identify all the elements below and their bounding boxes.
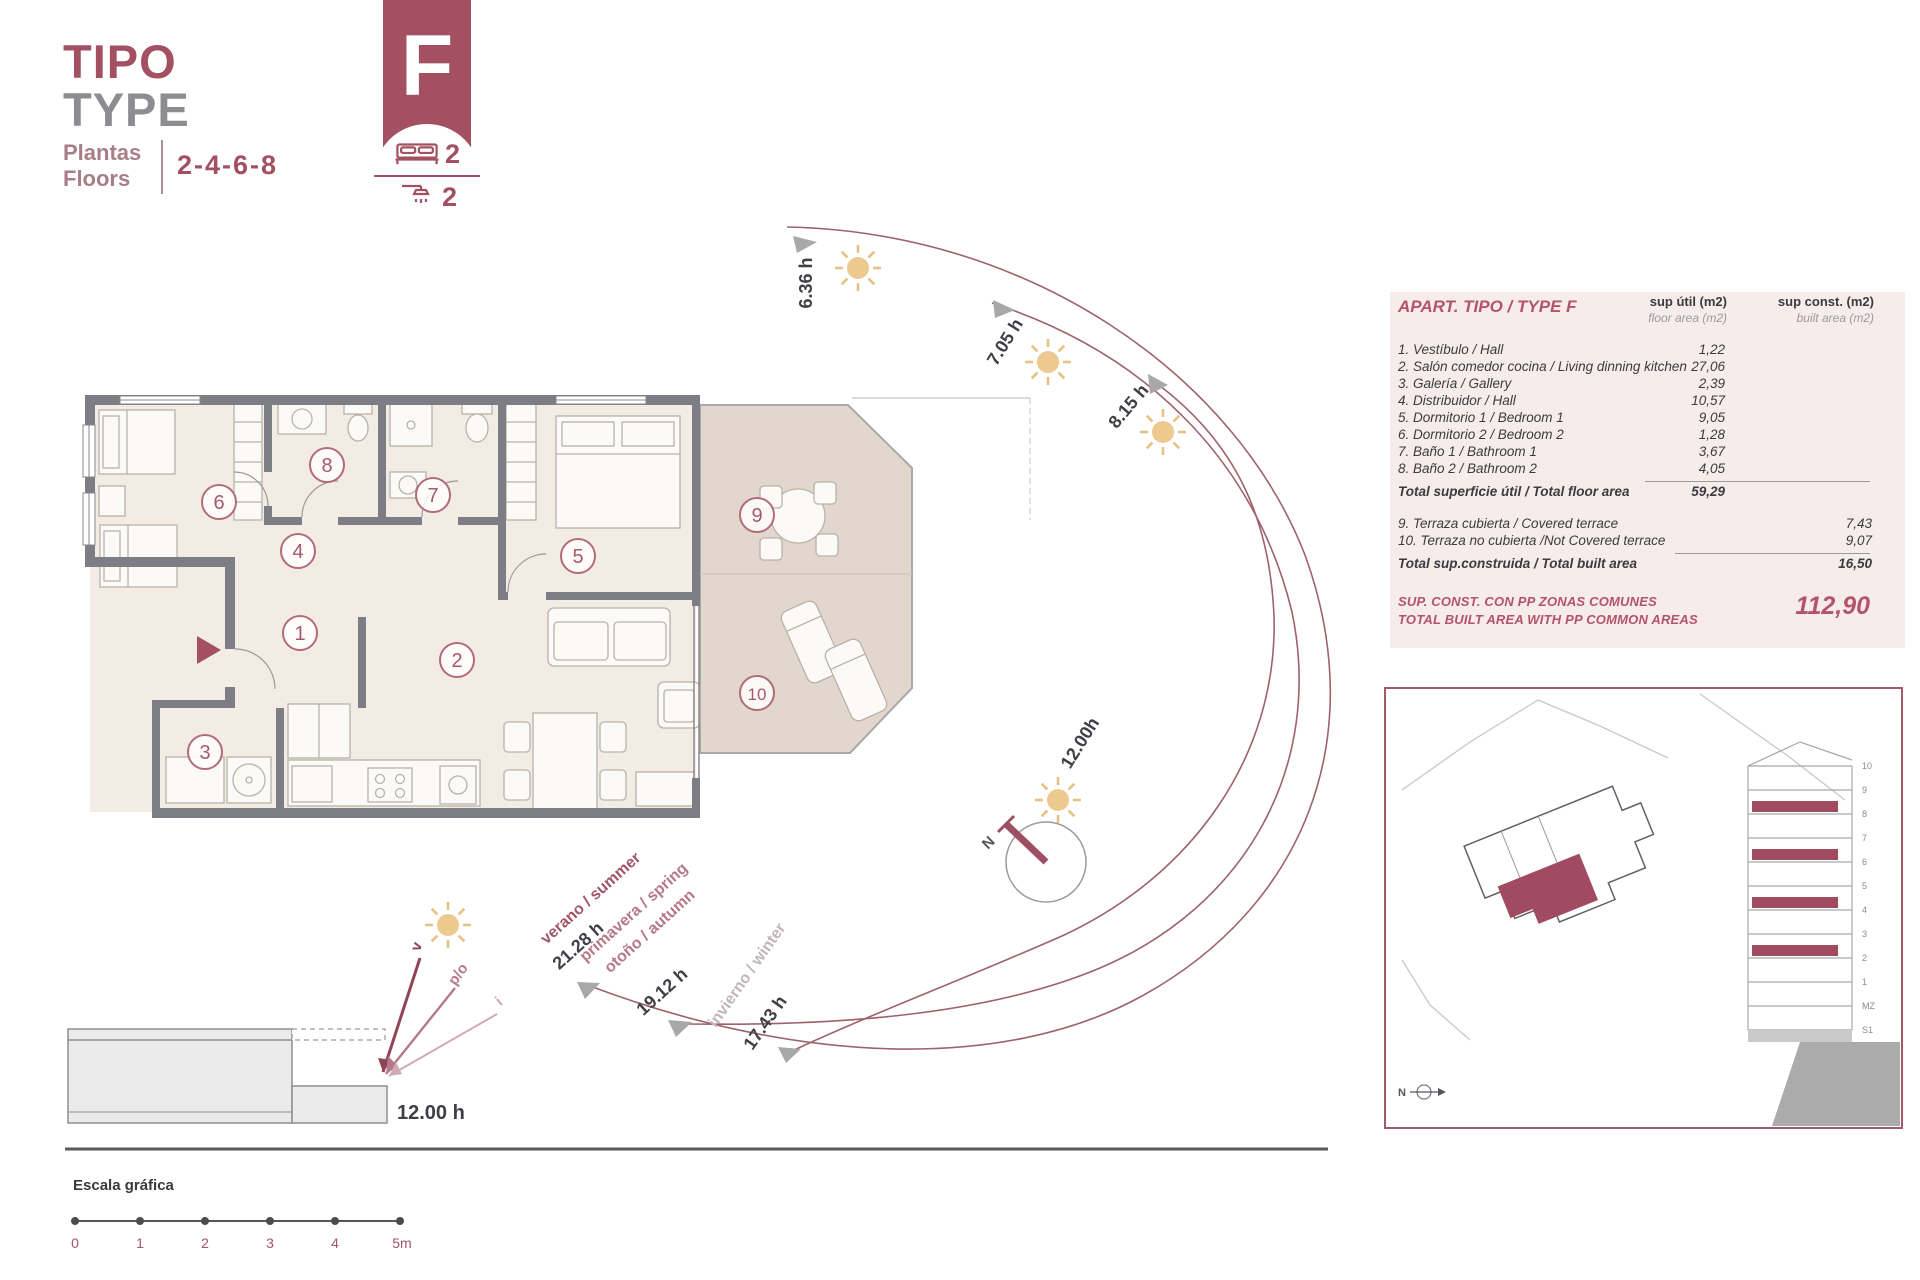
svg-text:N: N [1398,1087,1406,1099]
svg-text:10: 10 [748,685,767,704]
svg-text:1: 1 [1862,977,1867,987]
scale-tick: 5m [392,1235,411,1251]
sideboard [636,772,694,806]
sunrise-hour-winter: 8.15 h [1104,380,1152,432]
sofa [548,608,670,666]
room-circle: 5 [561,539,595,573]
sun-icon [425,902,471,948]
table-rule [1645,481,1870,482]
svg-text:2: 2 [451,650,462,672]
table-cell: 10,57 [1597,393,1725,408]
room-circle: 9 [740,498,774,532]
sunrise-hour-spring: 7.05 h [983,315,1027,369]
table-cell: 3,67 [1597,444,1725,459]
nightstand [99,486,125,516]
total-floor-area-value: 59,29 [1597,484,1725,499]
closet [234,402,262,520]
svg-text:6: 6 [213,492,224,514]
room-circle: 2 [440,643,474,677]
winter-ray [389,1014,497,1076]
kitchen-counter [288,760,480,806]
scale-tick: 2 [201,1235,209,1251]
svg-text:MZ: MZ [1862,1001,1875,1011]
sun-icon [1035,777,1081,823]
bed [100,525,177,587]
svg-text:7: 7 [1862,833,1867,843]
svg-text:8: 8 [321,455,332,477]
scale-tick: 3 [266,1235,274,1251]
table-row: 10. Terraza no cubierta /Not Covered ter… [1398,533,1733,548]
closet [506,402,536,520]
svg-text:4: 4 [1862,905,1867,915]
bed [99,410,175,474]
site-plan: 10 9 8 7 6 5 4 3 2 1 MZ S1 N [1385,688,1902,1128]
table-cell: 1,22 [1597,342,1725,357]
ray-label-verano: v [407,939,426,953]
scale-tick: 1 [136,1235,144,1251]
sunrise-hour-summer: 6.36 h [796,257,816,308]
noon-hour: 12.00h [1057,714,1104,772]
col-const-subheader: built area (m2) [1744,311,1874,325]
svg-text:2: 2 [1862,953,1867,963]
col-util-subheader: floor area (m2) [1597,311,1727,325]
svg-text:S1: S1 [1862,1025,1873,1035]
scale-tick: 4 [331,1235,339,1251]
bathroom-sink [278,404,326,434]
svg-text:1: 1 [294,623,305,645]
svg-text:3: 3 [199,742,210,764]
svg-text:8: 8 [1862,809,1867,819]
table-rule [1675,553,1870,554]
svg-text:3: 3 [1862,929,1867,939]
sun-icon [835,245,881,291]
washing-machine [227,757,271,803]
shower [390,404,432,446]
section-noon-label: 12.00 h [397,1102,465,1124]
svg-text:9: 9 [751,505,762,527]
table-cell: 4,05 [1597,461,1725,476]
room-circle: 8 [310,448,344,482]
svg-text:9: 9 [1862,785,1867,795]
ray-label-invierno: i [492,994,506,1010]
svg-text:10: 10 [1862,761,1872,771]
scale-bar: Escala gráfica 0 1 2 3 4 5m [71,1177,412,1251]
compass: N [979,816,1086,902]
table-title: APART. TIPO / TYPE F [1398,297,1577,317]
footer-total-value: 112,90 [1720,592,1870,621]
plan-sheet: TIPO TYPE Plantas Floors 2-4-6-8 F 2 [0,0,1920,1280]
table-cell: 9,05 [1597,410,1725,425]
compass-north-label: N [979,833,999,853]
svg-text:6: 6 [1862,857,1867,867]
scale-title: Escala gráfica [73,1177,175,1194]
room-circle: 4 [281,534,315,568]
sun-icon [1140,409,1186,455]
room-circle: 7 [416,478,450,512]
svg-text:5: 5 [1862,881,1867,891]
table-cell: 7,43 [1744,516,1872,531]
svg-text:4: 4 [292,541,303,563]
terrace-section [292,1086,387,1123]
sun-icon [1025,339,1071,385]
floor-plan: 1 2 3 4 5 6 7 8 9 10 [83,395,1030,818]
total-built-area-row: Total sup.construida / Total built area [1398,556,1733,571]
footer-line-es: SUP. CONST. CON PP ZONAS COMUNES [1398,594,1657,609]
table-row: 9. Terraza cubierta / Covered terrace [1398,516,1733,531]
kitchen-tall-units [288,704,350,758]
area-table: APART. TIPO / TYPE F sup útil (m2) floor… [1390,292,1905,648]
room-circle: 3 [188,735,222,769]
ray-label-primavera-otono: p/o [445,960,472,988]
table-cell: 27,06 [1597,359,1725,374]
col-util-header: sup útil (m2) [1597,294,1727,309]
col-const-header: sup const. (m2) [1744,294,1874,309]
svg-text:5: 5 [572,546,583,568]
table-cell: 9,07 [1744,533,1872,548]
elevation-base [1748,1030,1852,1042]
table-cell: 2,39 [1597,376,1725,391]
dashed-extension [292,1029,385,1040]
section-diagram: v p/o i 12.00 h [68,902,506,1124]
room-circle: 1 [283,616,317,650]
scale-tick: 0 [71,1235,79,1251]
table-cell: 1,28 [1597,427,1725,442]
room-circle: 6 [202,485,236,519]
total-built-area-value: 16,50 [1744,556,1872,571]
footer-line-en: TOTAL BUILT AREA WITH PP COMMON AREAS [1398,612,1698,627]
room-circle: 10 [740,676,774,710]
svg-text:7: 7 [427,485,438,507]
double-bed [556,416,680,528]
